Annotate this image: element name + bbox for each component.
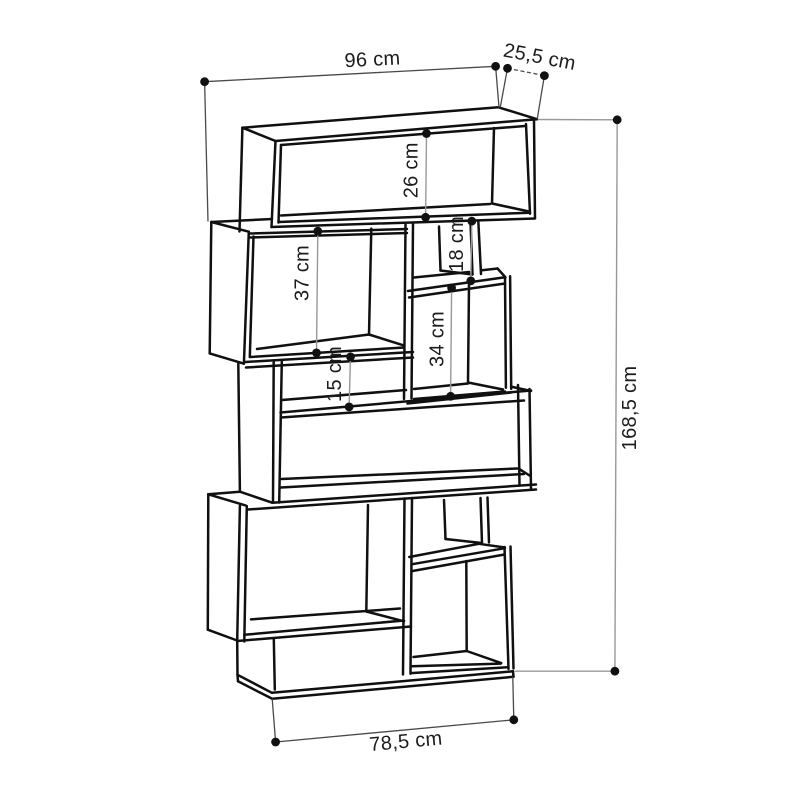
svg-text:168,5 cm: 168,5 cm: [619, 366, 641, 451]
svg-text:96 cm: 96 cm: [344, 47, 401, 72]
svg-text:18 cm: 18 cm: [446, 216, 468, 272]
svg-text:15 cm: 15 cm: [324, 346, 346, 402]
svg-text:34 cm: 34 cm: [426, 311, 448, 367]
svg-text:26 cm: 26 cm: [400, 142, 422, 198]
svg-text:37 cm: 37 cm: [291, 245, 313, 301]
